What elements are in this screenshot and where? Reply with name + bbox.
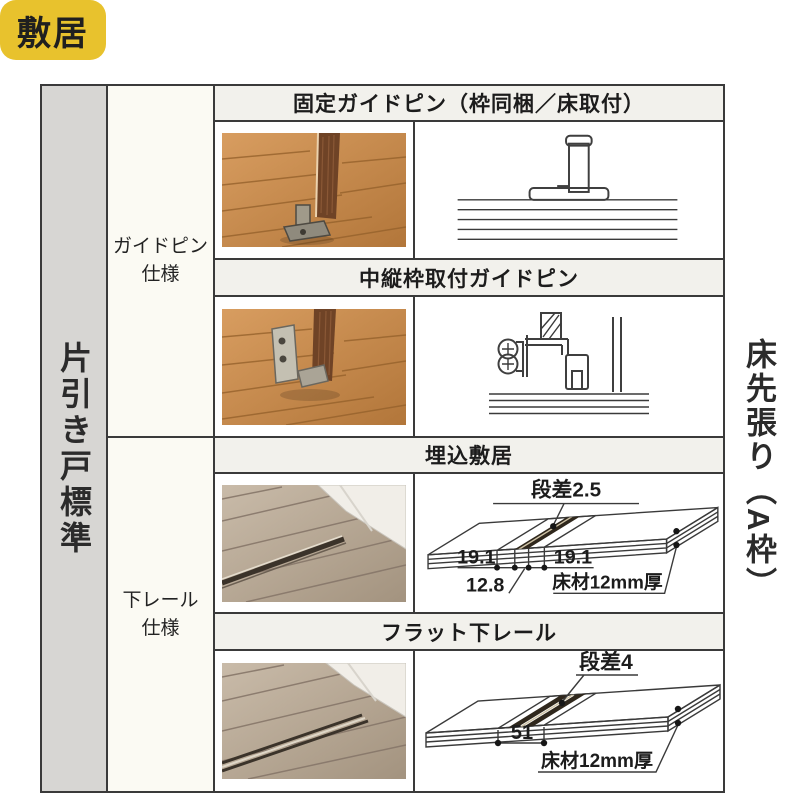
photo-embedded-sill [215, 474, 415, 614]
dim-step-4: 段差4 [579, 651, 633, 674]
dim-12-8: 12.8 [466, 574, 504, 596]
diagram-embedded-sill: 段差2.5 19.1 19.1 12.8 床材12mm厚 [415, 474, 723, 614]
group-bottom-rail-line2: 仕様 [141, 615, 179, 643]
left-axis-strip: 片引き戸標準 [42, 86, 108, 791]
wood-floor-fixed-guide-pin-photo [222, 133, 406, 247]
flat-rail-section-drawing: 段差4 51 床材12mm厚 [415, 651, 723, 791]
header-mid-frame-guide-pin-label: 中縦枠取付ガイドピン [359, 263, 579, 293]
group-bottom-rail-line1: 下レール [122, 587, 198, 615]
dim-19-1-left: 19.1 [457, 547, 495, 569]
right-axis: 床先張り（A枠） [736, 338, 781, 683]
photo-flat-rail [215, 651, 415, 791]
header-mid-frame-guide-pin: 中縦枠取付ガイドピン [215, 260, 723, 297]
header-flat-rail: フラット下レール [215, 614, 723, 651]
header-fixed-guide-pin-label: 固定ガイドピン（枠同梱／床取付） [293, 88, 645, 118]
group-cell-bottom-rail: 下レール 仕様 [108, 438, 215, 791]
mid-frame-guide-pin-section-drawing [415, 297, 723, 436]
group-guide-pin-line2: 仕様 [141, 261, 179, 289]
threshold-spec-sheet: 敷居 片引き戸標準 ガイドピン 仕様 下レール 仕様 固定ガイドピン（枠同梱／床… [0, 0, 800, 800]
diagram-flat-rail: 段差4 51 床材12mm厚 [415, 651, 723, 791]
floor-embedded-sill-photo [222, 485, 406, 602]
header-fixed-guide-pin: 固定ガイドピン（枠同梱／床取付） [215, 86, 723, 122]
fixed-guide-pin-section-drawing [415, 122, 723, 258]
diagram-mid-frame-guide-pin [415, 297, 723, 438]
header-embedded-sill: 埋込敷居 [215, 438, 723, 474]
dim-floor-12mm: 床材12mm厚 [541, 749, 653, 772]
spec-table: 片引き戸標準 ガイドピン 仕様 下レール 仕様 固定ガイドピン（枠同梱／床取付） [40, 84, 725, 793]
dim-51: 51 [511, 722, 533, 744]
dim-step-2-5: 段差2.5 [531, 478, 601, 502]
section-badge: 敷居 [0, 0, 106, 60]
dim-19-1-right: 19.1 [554, 547, 592, 569]
header-flat-rail-label: フラット下レール [381, 617, 557, 647]
floor-flat-rail-photo [222, 663, 406, 779]
dim-floor-12mm: 床材12mm厚 [552, 571, 663, 592]
header-embedded-sill-label: 埋込敷居 [425, 440, 513, 470]
diagram-fixed-guide-pin [415, 122, 723, 260]
photo-fixed-guide-pin [215, 122, 415, 260]
wood-floor-bracket-guide-pin-photo [222, 309, 406, 425]
left-axis-label: 片引き戸標準 [51, 341, 97, 557]
right-axis-label: 床先張り（A枠） [736, 338, 781, 601]
section-badge-label: 敷居 [17, 6, 89, 55]
photo-mid-frame-guide-pin [215, 297, 415, 438]
group-cell-guide-pin: ガイドピン 仕様 [108, 86, 215, 438]
group-guide-pin-line1: ガイドピン [113, 233, 208, 261]
embedded-sill-section-drawing: 段差2.5 19.1 19.1 12.8 床材12mm厚 [415, 474, 723, 612]
